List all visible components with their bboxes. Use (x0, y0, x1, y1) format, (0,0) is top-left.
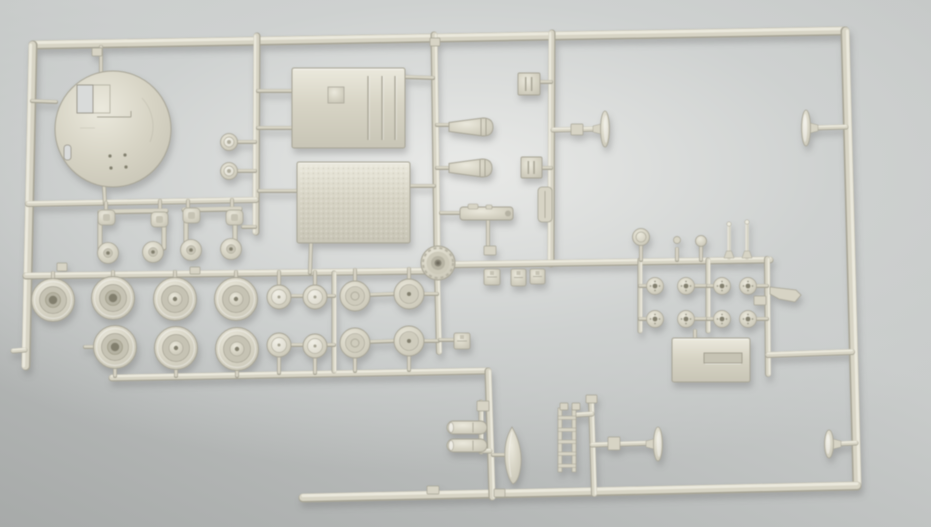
wheel-hub-cap (678, 278, 695, 295)
sprue-gate-tab (494, 489, 505, 497)
runner-frames-branch (28, 198, 256, 204)
road-wheel (32, 279, 75, 322)
sprue-gate-tab (477, 401, 489, 411)
road-wheel-small (394, 326, 424, 356)
model-kit-sprue-photo (0, 0, 931, 527)
flat-bracket (538, 187, 552, 222)
runner-frame-bottom (303, 484, 857, 498)
drive-sprocket-hub (421, 246, 455, 280)
wheel-hub-cap (714, 278, 731, 295)
sprue-gate-tab (190, 267, 200, 274)
page: { "scene": { "description": "Photograph … (0, 0, 931, 527)
sprue-gate-tab (92, 48, 102, 56)
suspension-frame (98, 210, 169, 264)
hull-roof-panel (292, 68, 405, 148)
idler-wheel-half (646, 427, 663, 461)
gun-mount-part (460, 204, 513, 220)
ball-pin (696, 236, 707, 247)
stowage-box (518, 73, 540, 95)
hub-cap-pin (633, 229, 650, 246)
circular-base-plate (55, 71, 171, 187)
return-roller (267, 285, 291, 309)
sprue-gate-tab (427, 486, 439, 494)
idler-wheel-half (593, 111, 610, 147)
gun-barrel-half (447, 439, 487, 452)
sprue-gate-tab (571, 124, 583, 135)
sprue-gate-tab (57, 263, 67, 271)
runner-ladder-branch (576, 413, 592, 415)
sprue-gate-tab (484, 246, 496, 255)
road-wheel (154, 278, 197, 321)
sprue-gate-tab (754, 296, 766, 305)
sprue-svg (0, 0, 931, 527)
runner-right-link (768, 350, 852, 355)
sprue-gate-tab (430, 38, 440, 46)
small-pin (674, 237, 681, 244)
runner-v3 (549, 33, 552, 264)
runner-mini-wheels (334, 273, 335, 371)
wheel-hub-cap (678, 311, 695, 328)
hatch-cap (221, 134, 238, 151)
wheel-hub-cap (714, 311, 731, 328)
antenna-pin (742, 220, 752, 258)
stowage-box (521, 157, 542, 178)
runner-wheels-top (26, 269, 437, 276)
runner-mid-horizontal (437, 258, 770, 265)
road-wheel (92, 277, 135, 320)
runner-idler-branch (592, 442, 654, 445)
idler-wheel-half (802, 110, 819, 146)
wheel-hub-cap (740, 311, 757, 328)
return-roller (267, 333, 291, 357)
ladder-part (558, 408, 576, 472)
return-roller (303, 285, 327, 309)
road-wheel (155, 327, 198, 370)
road-wheel (216, 328, 259, 371)
runner-wheels-bottom (112, 369, 488, 378)
road-wheel-small (394, 279, 424, 309)
shovel-blade (505, 427, 521, 484)
runner-frame-right (845, 31, 859, 486)
idler-wheel-half (825, 430, 842, 458)
road-wheel (94, 326, 137, 369)
small-clip (530, 269, 545, 284)
road-wheel (215, 278, 258, 321)
sprue-gate-tab (560, 403, 568, 410)
small-clip (484, 269, 500, 285)
small-clip (454, 333, 470, 349)
tow-bracket (770, 287, 801, 302)
runner-center-lower (488, 371, 494, 497)
sprue-gate-tab (586, 395, 597, 403)
sprue (13, 29, 859, 498)
sprue-gate-tab (608, 437, 620, 450)
antenna-pin (724, 222, 734, 258)
suspension-frame (181, 208, 244, 261)
small-clip (511, 269, 526, 286)
road-wheel-small (340, 328, 370, 358)
exhaust-muffler (449, 159, 492, 177)
textured-deck-panel (297, 162, 410, 243)
hatch-cap (221, 163, 238, 180)
engine-access-plate (672, 338, 750, 382)
exhaust-muffler (449, 118, 493, 136)
wheel-hub-cap (647, 278, 664, 295)
stem-left-foot (13, 349, 25, 351)
wheel-hub-cap (647, 311, 664, 328)
runner-v2 (434, 35, 439, 250)
road-wheel-small (340, 281, 370, 311)
sprue-gate-tab (572, 403, 580, 410)
wheel-hub-cap (740, 278, 757, 295)
gun-barrel-half (447, 421, 487, 434)
return-roller (303, 334, 327, 358)
